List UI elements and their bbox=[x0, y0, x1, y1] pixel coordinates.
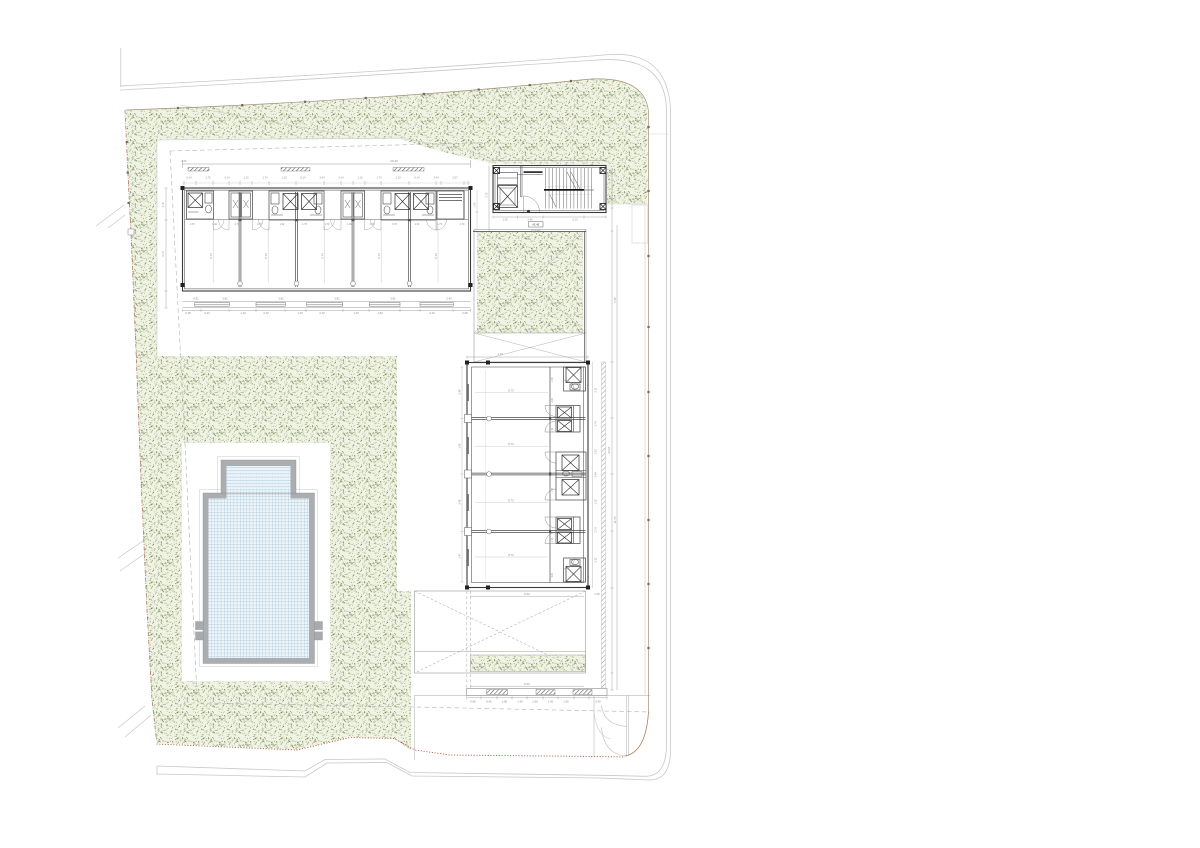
svg-text:5.74: 5.74 bbox=[161, 251, 165, 257]
svg-text:1.10: 1.10 bbox=[395, 175, 401, 179]
svg-text:1.74: 1.74 bbox=[262, 175, 268, 179]
svg-text:1.79: 1.79 bbox=[460, 223, 465, 226]
svg-text:2.40: 2.40 bbox=[446, 296, 452, 300]
svg-text:5.74: 5.74 bbox=[264, 253, 268, 259]
svg-text:0.14: 0.14 bbox=[186, 175, 192, 179]
svg-text:5.74: 5.74 bbox=[377, 253, 381, 259]
svg-text:1.40: 1.40 bbox=[240, 311, 246, 315]
svg-text:1.74: 1.74 bbox=[594, 421, 598, 427]
svg-text:2.11: 2.11 bbox=[594, 557, 598, 562]
svg-text:2.46: 2.46 bbox=[527, 218, 533, 222]
svg-text:29.40: 29.40 bbox=[390, 159, 398, 163]
svg-text:1.84: 1.84 bbox=[377, 311, 383, 315]
svg-text:11.70: 11.70 bbox=[613, 516, 617, 523]
svg-text:1.36: 1.36 bbox=[502, 218, 508, 222]
svg-text:0.70: 0.70 bbox=[257, 223, 262, 226]
svg-text:1.20: 1.20 bbox=[594, 592, 600, 596]
svg-text:1.10: 1.10 bbox=[497, 352, 503, 356]
svg-text:1.79: 1.79 bbox=[325, 223, 330, 226]
svg-text:3.81: 3.81 bbox=[334, 296, 340, 300]
svg-text:0.45: 0.45 bbox=[486, 700, 492, 704]
svg-text:1.79: 1.79 bbox=[551, 377, 554, 382]
svg-text:0.70: 0.70 bbox=[392, 223, 397, 226]
svg-text:1.40: 1.40 bbox=[353, 311, 359, 315]
svg-text:1.40: 1.40 bbox=[297, 311, 303, 315]
svg-text:2.40: 2.40 bbox=[429, 311, 435, 315]
svg-text:1.32: 1.32 bbox=[415, 223, 420, 226]
svg-text:(119.48): (119.48) bbox=[531, 229, 541, 233]
svg-text:2.40: 2.40 bbox=[319, 311, 325, 315]
svg-text:5.74: 5.74 bbox=[321, 253, 325, 259]
svg-text:1.74: 1.74 bbox=[551, 487, 554, 492]
svg-text:0.70: 0.70 bbox=[235, 223, 240, 226]
svg-text:7.00: 7.00 bbox=[525, 237, 531, 241]
svg-text:45.48: 45.48 bbox=[532, 223, 539, 227]
svg-text:1.10: 1.10 bbox=[594, 499, 598, 505]
svg-text:0.48: 0.48 bbox=[185, 311, 191, 315]
svg-text:1.32: 1.32 bbox=[347, 223, 352, 226]
svg-text:1.79: 1.79 bbox=[161, 202, 165, 208]
svg-text:0.81: 0.81 bbox=[193, 296, 199, 300]
svg-text:2.07: 2.07 bbox=[452, 175, 458, 179]
svg-text:1.74: 1.74 bbox=[551, 427, 554, 432]
svg-text:1.40: 1.40 bbox=[474, 202, 477, 207]
svg-text:24.61: 24.61 bbox=[607, 446, 611, 453]
svg-text:3.81: 3.81 bbox=[551, 397, 554, 402]
svg-text:8.73: 8.73 bbox=[508, 553, 514, 557]
svg-text:1.47: 1.47 bbox=[459, 553, 462, 558]
svg-text:1.32: 1.32 bbox=[280, 223, 285, 226]
svg-text:1.74: 1.74 bbox=[551, 537, 554, 542]
svg-text:3.81: 3.81 bbox=[222, 296, 228, 300]
svg-text:0.14: 0.14 bbox=[414, 175, 420, 179]
svg-text:3.48: 3.48 bbox=[459, 389, 462, 394]
svg-text:3.81: 3.81 bbox=[551, 572, 554, 577]
svg-text:1.90: 1.90 bbox=[502, 700, 508, 704]
svg-text:2.11: 2.11 bbox=[594, 387, 598, 392]
svg-text:1.10: 1.10 bbox=[594, 449, 598, 455]
svg-text:3.44: 3.44 bbox=[319, 175, 325, 179]
svg-text:0.80: 0.80 bbox=[470, 700, 476, 704]
svg-text:8.73: 8.73 bbox=[508, 442, 514, 446]
svg-text:5.74: 5.74 bbox=[434, 253, 438, 259]
svg-text:3.44: 3.44 bbox=[433, 175, 439, 179]
svg-text:1.10: 1.10 bbox=[281, 175, 287, 179]
svg-text:1.74: 1.74 bbox=[594, 527, 598, 533]
svg-text:0.14: 0.14 bbox=[224, 175, 230, 179]
svg-text:1.79: 1.79 bbox=[190, 223, 195, 226]
svg-text:1.10: 1.10 bbox=[357, 175, 363, 179]
svg-text:1.90: 1.90 bbox=[517, 700, 523, 704]
svg-text:1.74: 1.74 bbox=[376, 175, 382, 179]
svg-text:3.81: 3.81 bbox=[278, 296, 284, 300]
svg-text:0.70: 0.70 bbox=[370, 223, 375, 226]
svg-text:0.40: 0.40 bbox=[595, 700, 601, 704]
svg-text:8.20: 8.20 bbox=[524, 682, 530, 686]
svg-text:1.90: 1.90 bbox=[532, 700, 538, 704]
svg-text:5.74: 5.74 bbox=[209, 253, 213, 259]
svg-text:6.13: 6.13 bbox=[572, 218, 578, 222]
svg-text:1.10: 1.10 bbox=[243, 175, 249, 179]
svg-text:1.79: 1.79 bbox=[437, 223, 442, 226]
svg-text:3.48: 3.48 bbox=[459, 499, 462, 504]
svg-text:1.40: 1.40 bbox=[459, 443, 462, 448]
svg-text:1.20: 1.20 bbox=[548, 700, 554, 704]
svg-text:8.73: 8.73 bbox=[508, 389, 514, 393]
svg-text:2.40: 2.40 bbox=[204, 311, 210, 315]
svg-text:0.14: 0.14 bbox=[300, 175, 306, 179]
svg-text:1.32: 1.32 bbox=[212, 223, 217, 226]
svg-text:2.76: 2.76 bbox=[486, 192, 489, 197]
svg-text:1.70: 1.70 bbox=[205, 175, 211, 179]
svg-text:1.90: 1.90 bbox=[563, 700, 569, 704]
svg-text:1.79: 1.79 bbox=[302, 223, 307, 226]
svg-text:2.40: 2.40 bbox=[263, 311, 269, 315]
svg-text:3.44: 3.44 bbox=[594, 472, 598, 478]
svg-text:3.81: 3.81 bbox=[390, 296, 396, 300]
svg-text:8.73: 8.73 bbox=[508, 499, 514, 503]
svg-text:0.08: 0.08 bbox=[462, 311, 468, 315]
svg-text:0.14: 0.14 bbox=[338, 175, 344, 179]
svg-text:0.06: 0.06 bbox=[182, 160, 187, 163]
svg-text:8.20: 8.20 bbox=[524, 592, 530, 596]
svg-text:5.10: 5.10 bbox=[613, 297, 617, 303]
